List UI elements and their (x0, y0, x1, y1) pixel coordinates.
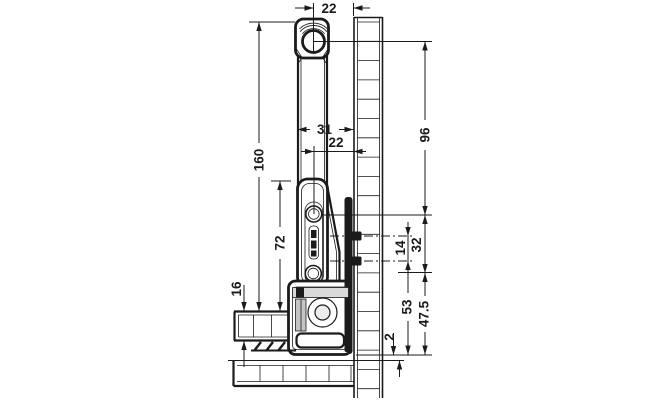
dim-96: 96 (418, 42, 433, 216)
technical-drawing-page: 22 31 22 160 (0, 0, 659, 400)
dim-53: 53 (400, 299, 415, 354)
dim-label-72: 72 (273, 235, 288, 250)
dim-16: 16 (229, 281, 247, 367)
bottom-flange (297, 334, 345, 348)
dim-label-14: 14 (393, 240, 408, 256)
dim-22-top: 22 (295, 1, 370, 16)
dim-14: 14 (393, 222, 411, 293)
dim-72: 72 (273, 181, 288, 311)
dim-label-22-top: 22 (321, 1, 336, 16)
dim-label-96: 96 (418, 127, 433, 143)
dim-label-22-mid: 22 (328, 135, 343, 150)
dim-160: 160 (252, 22, 267, 311)
technical-drawing-svg: 22 31 22 160 (0, 0, 659, 400)
dim-label-32: 32 (409, 237, 424, 252)
shelf-dividers (260, 366, 351, 382)
chipboard-rungs (358, 22, 380, 389)
dim-22-mid: 22 (301, 135, 366, 154)
dim-32: 32 (409, 215, 428, 273)
runner-housing (289, 281, 353, 355)
dim-label-47-5: 47.5 (417, 300, 432, 327)
dim-label-16: 16 (229, 281, 244, 297)
cabinet-side-panel (354, 17, 383, 398)
dim-label-53: 53 (400, 299, 415, 315)
front-bracket (298, 179, 328, 287)
drawer-side-profile (251, 19, 362, 355)
drawer-bottom-dividers (254, 315, 290, 337)
dim-label-160: 160 (252, 149, 267, 172)
dim-47-5: 47.5 (417, 273, 432, 355)
cabinet-bottom-panel (228, 361, 404, 387)
dim-31: 31 (298, 122, 354, 137)
drawer-bottom-panel (234, 312, 295, 341)
dim-label-2: 2 (382, 333, 397, 341)
